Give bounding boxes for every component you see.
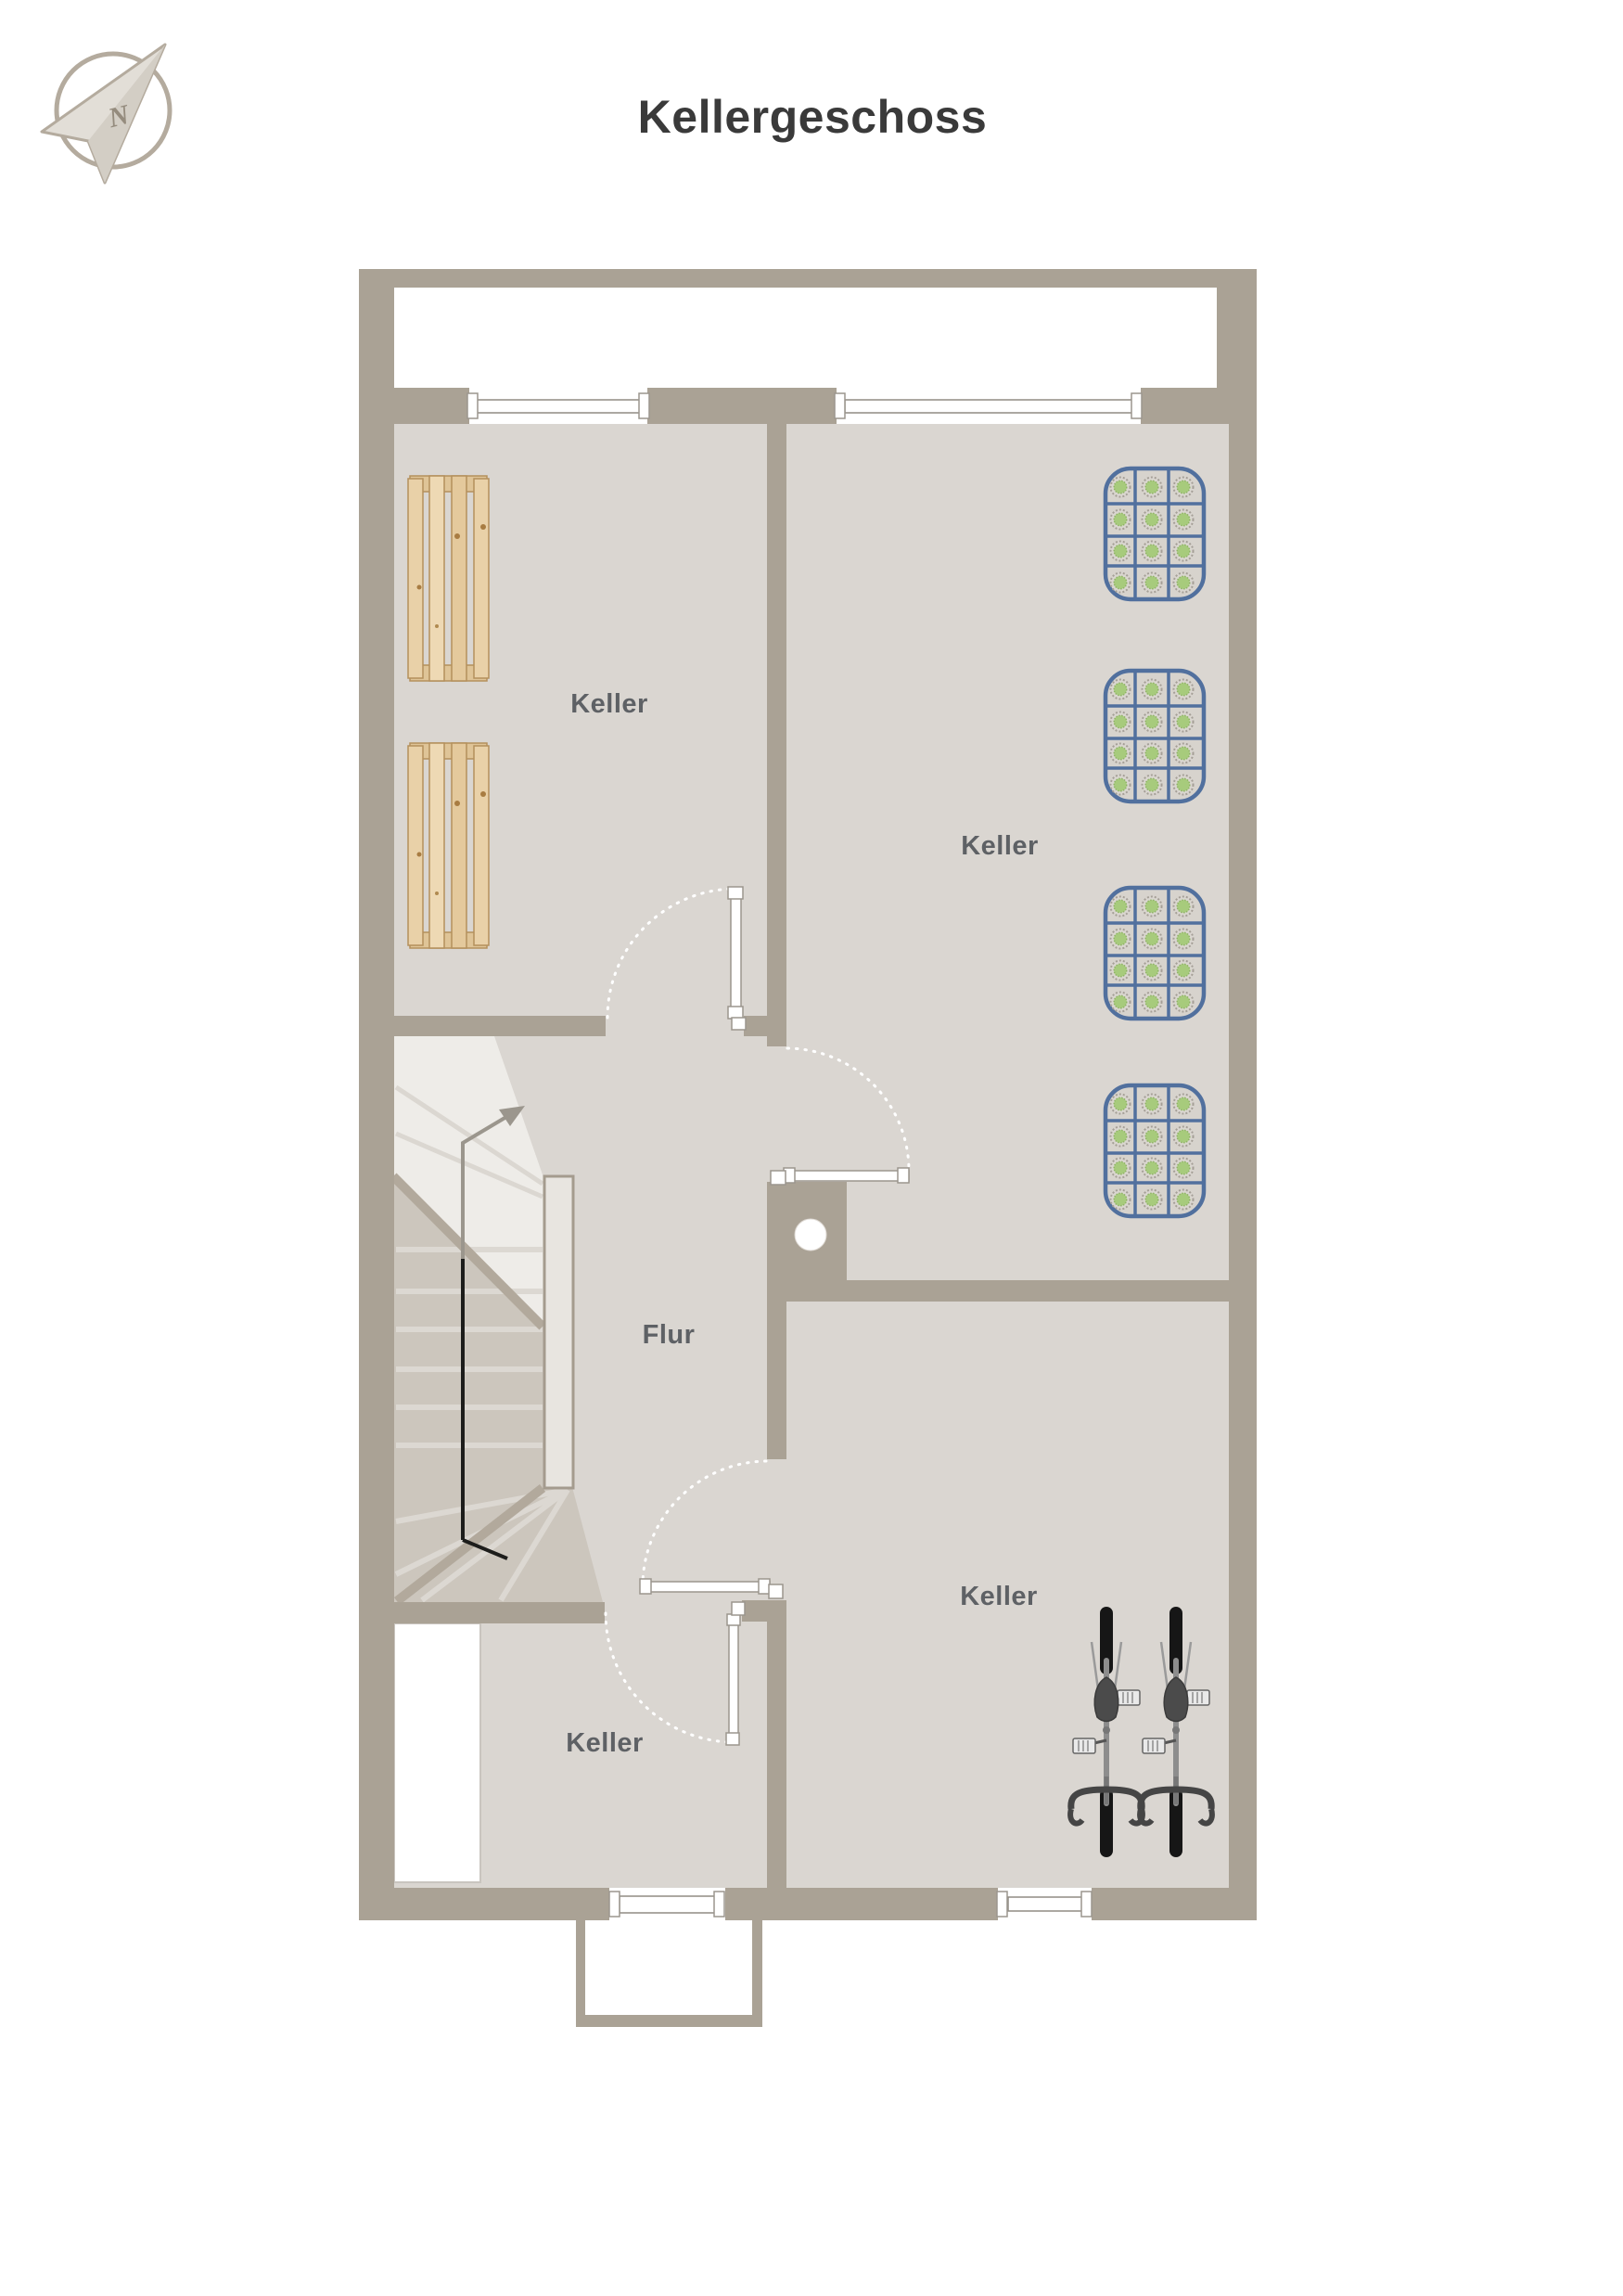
- beverage-crate-2: [1105, 671, 1204, 802]
- keller-tl-south-wall-stub: [744, 1016, 767, 1036]
- beverage-crate-3: [1105, 888, 1204, 1019]
- window-top-left: [467, 388, 649, 424]
- interior-wall-vertical-top: [767, 424, 786, 1046]
- plan: Keller Keller Flur Keller Keller: [359, 269, 1257, 2027]
- north-wall-segment-a: [394, 388, 469, 424]
- interior-wall-vertical-mid: [767, 1302, 786, 1459]
- page-title: Kellergeschoss: [638, 91, 988, 143]
- entrance-porch: [576, 1920, 762, 2027]
- outer-wall-bottom: [359, 1888, 1257, 1920]
- storage-niche: [394, 1623, 480, 1882]
- north-wall-segment-c: [1141, 388, 1229, 424]
- room-label-keller-bottom-left: Keller: [566, 1728, 644, 1758]
- room-label-keller-top-right: Keller: [961, 831, 1039, 861]
- room-label-keller-top-left: Keller: [570, 689, 648, 719]
- outer-wall-right: [1229, 269, 1257, 1920]
- stair-handrail-wall: [544, 1176, 573, 1488]
- room-label-flur: Flur: [643, 1320, 696, 1350]
- window-bottom-right: [997, 1888, 1092, 1920]
- outer-wall-top: [359, 269, 1257, 288]
- beverage-crate-1: [1105, 468, 1204, 599]
- room-label-keller-bottom-right: Keller: [960, 1582, 1038, 1611]
- compass: N: [42, 45, 170, 183]
- window-top-right: [835, 388, 1142, 424]
- light-well-right-wall: [1217, 288, 1229, 388]
- stair-south-wall-stub: [394, 1602, 605, 1623]
- beverage-crate-4: [1105, 1085, 1204, 1216]
- entrance-door: [609, 1888, 725, 1920]
- keller-tr-south-wall: [767, 1280, 1229, 1302]
- outer-wall-left: [359, 269, 394, 1920]
- north-wall-segment-b: [647, 388, 837, 424]
- column-circle: [795, 1219, 826, 1251]
- light-well-strip: [394, 288, 1217, 388]
- porch-floor: [585, 1920, 752, 2015]
- interior-wall-vertical-low: [767, 1600, 786, 1888]
- keller-tl-south-wall: [394, 1016, 606, 1036]
- floor-plan-kellergeschoss: Kellergeschoss N: [0, 0, 1623, 2296]
